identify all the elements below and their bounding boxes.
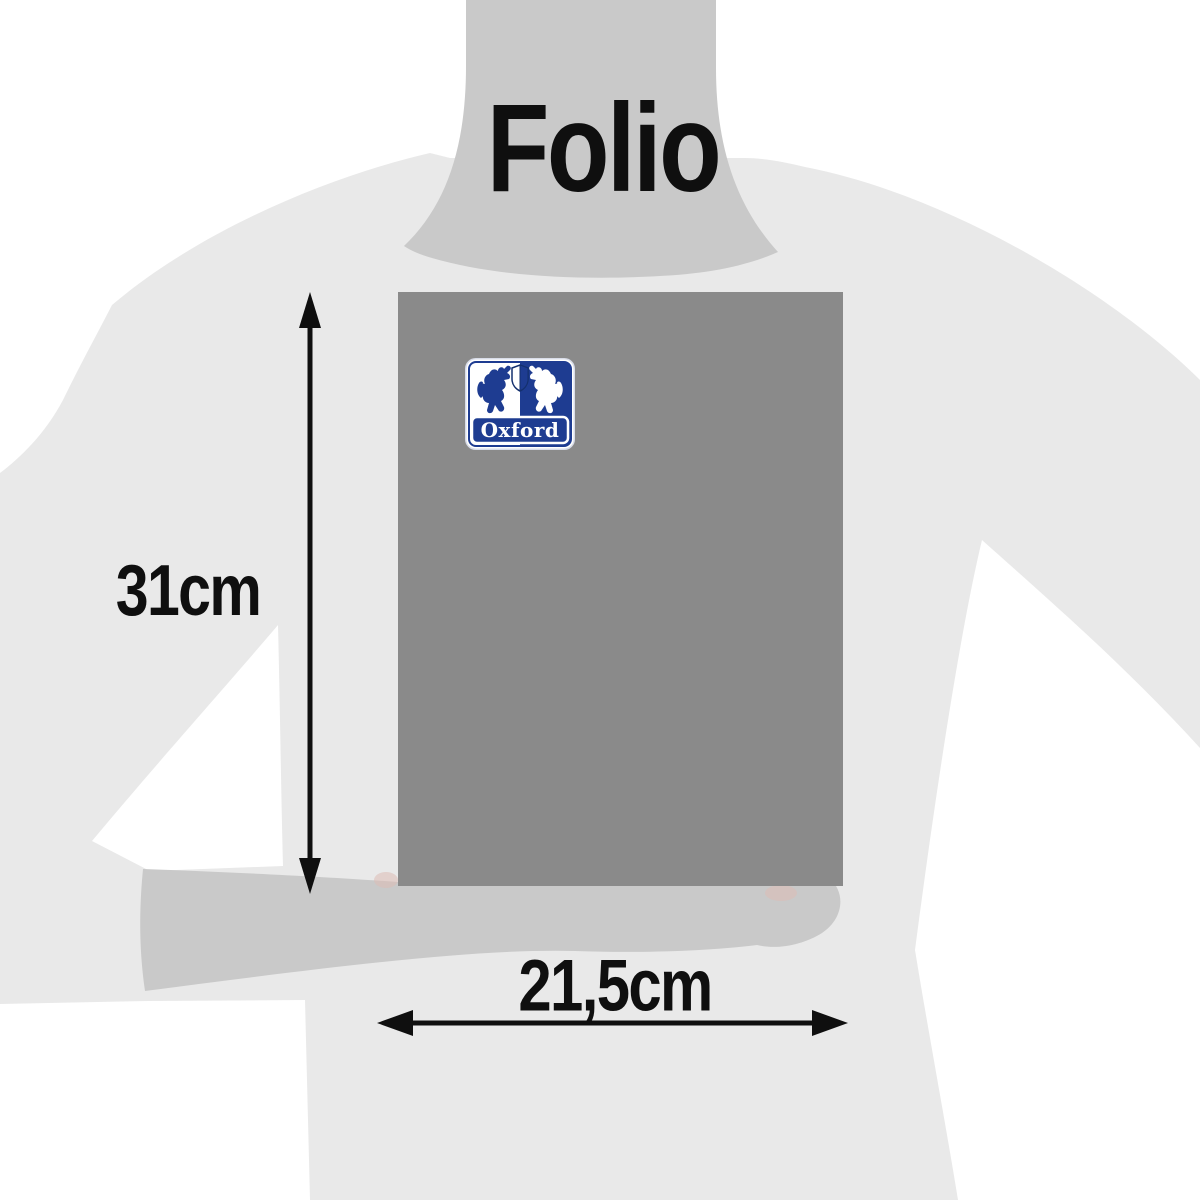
height-dimension-label: 31cm — [116, 555, 260, 627]
notebook-cover: Oxford — [398, 292, 843, 886]
oxford-wordmark: Oxford — [481, 418, 560, 442]
fingertip-left — [374, 872, 398, 888]
shield-icon — [512, 365, 528, 391]
product-dimension-figure: Oxford Folio 31cm 21,5cm — [0, 0, 1200, 1200]
format-title: Folio — [111, 86, 1095, 211]
oxford-logo: Oxford — [465, 358, 575, 450]
width-dimension-label: 21,5cm — [518, 950, 711, 1023]
fingertip-right — [765, 885, 797, 901]
